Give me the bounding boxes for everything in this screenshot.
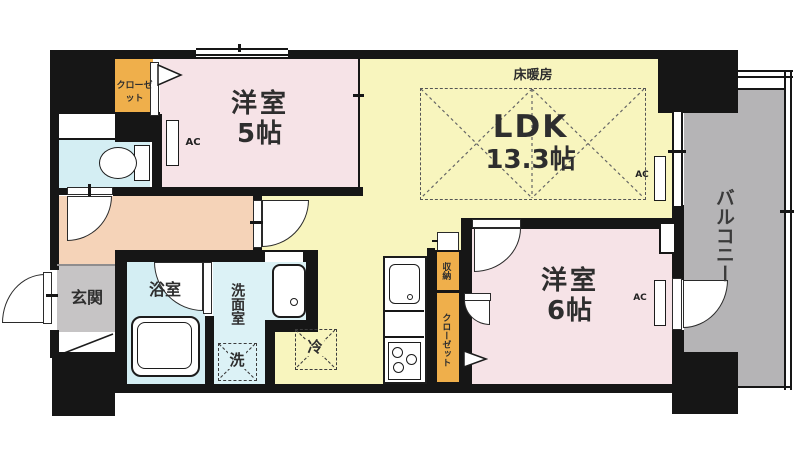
kitchen-divider-2 [385,336,424,338]
wall-entrance-right [115,250,127,386]
ac-unit-room5 [166,120,179,166]
ac-label-ldk: AC [631,170,653,180]
balcony-door-leaf [672,278,682,330]
storage-hatch-tick [432,240,438,242]
room6-size: 6帖 [495,297,645,327]
wall-block-topleft [50,50,115,114]
fridge-spot: 冷 [295,329,337,370]
kitchen-sink [389,264,420,304]
wall-bottom [110,384,686,393]
front-door-swing [2,274,45,323]
ac-unit-ldk [654,156,666,201]
room6-closet-door-leaf [464,293,491,301]
washer-label: 洗 [228,352,246,369]
floor-heating-label: 床暖房 [490,69,576,84]
washer-spot: 洗 [218,343,257,381]
railing-right-outer [790,70,792,390]
pipe-shaft-notch [659,222,676,254]
room6-door-leaf [472,219,521,228]
room5-size: 5帖 [185,120,335,150]
closet-nw-label: クローゼット [116,80,153,105]
floorplan-canvas: 床暖房 [0,0,800,454]
floor-alcove [57,114,115,140]
balcony-label: バルコニー [712,160,734,310]
kitchen-divider-1 [385,310,424,312]
fridge-label: 冷 [306,339,324,356]
ldk-balcony-window [672,112,683,206]
storage-label: 収納 [440,256,450,286]
closet-east-label: クローゼット [440,298,450,382]
washbasin-faucet [290,298,298,306]
partition-tick [353,94,364,97]
storage-hatch [437,232,459,252]
hall-ldk-door-tick [250,221,263,224]
window-mid-line [196,54,288,56]
stove-burner-2 [406,354,417,365]
wall-alcove-bottom-line [57,138,115,140]
room6-label: 洋室 6帖 [495,267,645,327]
kitchen-sink-faucet [407,294,413,300]
toilet-door-tick [88,184,91,196]
bathroom-label: 浴室 [136,281,194,299]
room6-name: 洋室 [495,267,645,297]
balcony-top-line [684,88,784,90]
partition-room5-ldk [358,59,360,187]
bathroom-door-leaf [203,262,212,314]
room5-window-tick [238,44,241,52]
washbasin [272,264,306,318]
toilet-bowl [99,147,137,179]
front-door-tick [46,294,58,297]
room5-top-window [196,48,288,59]
wall-washroom-step-v [265,330,275,386]
wall-block-bottomleft [52,352,115,416]
wall-toilet-bottom-left [57,188,67,195]
stove-burner-3 [393,362,404,373]
bathtub [131,316,200,377]
railing-bottom-line [684,386,792,388]
wall-kitchen-east [427,248,435,385]
wall-room5-bottom [150,187,363,196]
ldk-size: 13.3帖 [453,146,608,176]
ac-unit-room6 [654,280,666,326]
room5-label: 洋室 5帖 [185,90,335,150]
ldk-name: LDK [453,110,608,146]
kitchen-counter [383,256,427,384]
entrance-label: 玄関 [61,289,113,307]
washroom-door-opening [265,252,303,262]
railing-right-inner [784,70,786,390]
wall-bath-washroom [205,316,214,386]
wall-top [50,50,672,59]
wall-right-low [672,330,684,386]
stove-burner-1 [392,347,403,358]
closet-nw-bifold-icon [157,64,183,86]
hall-ldk-door-leaf [253,200,262,248]
wall-room5-left [152,114,162,192]
front-door-leaf [43,272,52,324]
wall-alcove-top-line [57,112,115,114]
washroom-label: 洗面室 [229,266,245,342]
wall-left-upper [50,50,59,270]
wall-toilet-bottom-right [113,187,152,196]
storage-divider [437,290,459,293]
entrance-floor-line [57,264,115,266]
wall-block-topright [658,50,738,113]
railing-tick [780,210,794,213]
ldk-window-tick [668,150,686,153]
room6-closet-bifold-icon [463,350,488,368]
bathtub-inner [137,322,192,369]
ldk-label: LDK 13.3帖 [453,110,608,176]
room5-name: 洋室 [185,90,335,120]
